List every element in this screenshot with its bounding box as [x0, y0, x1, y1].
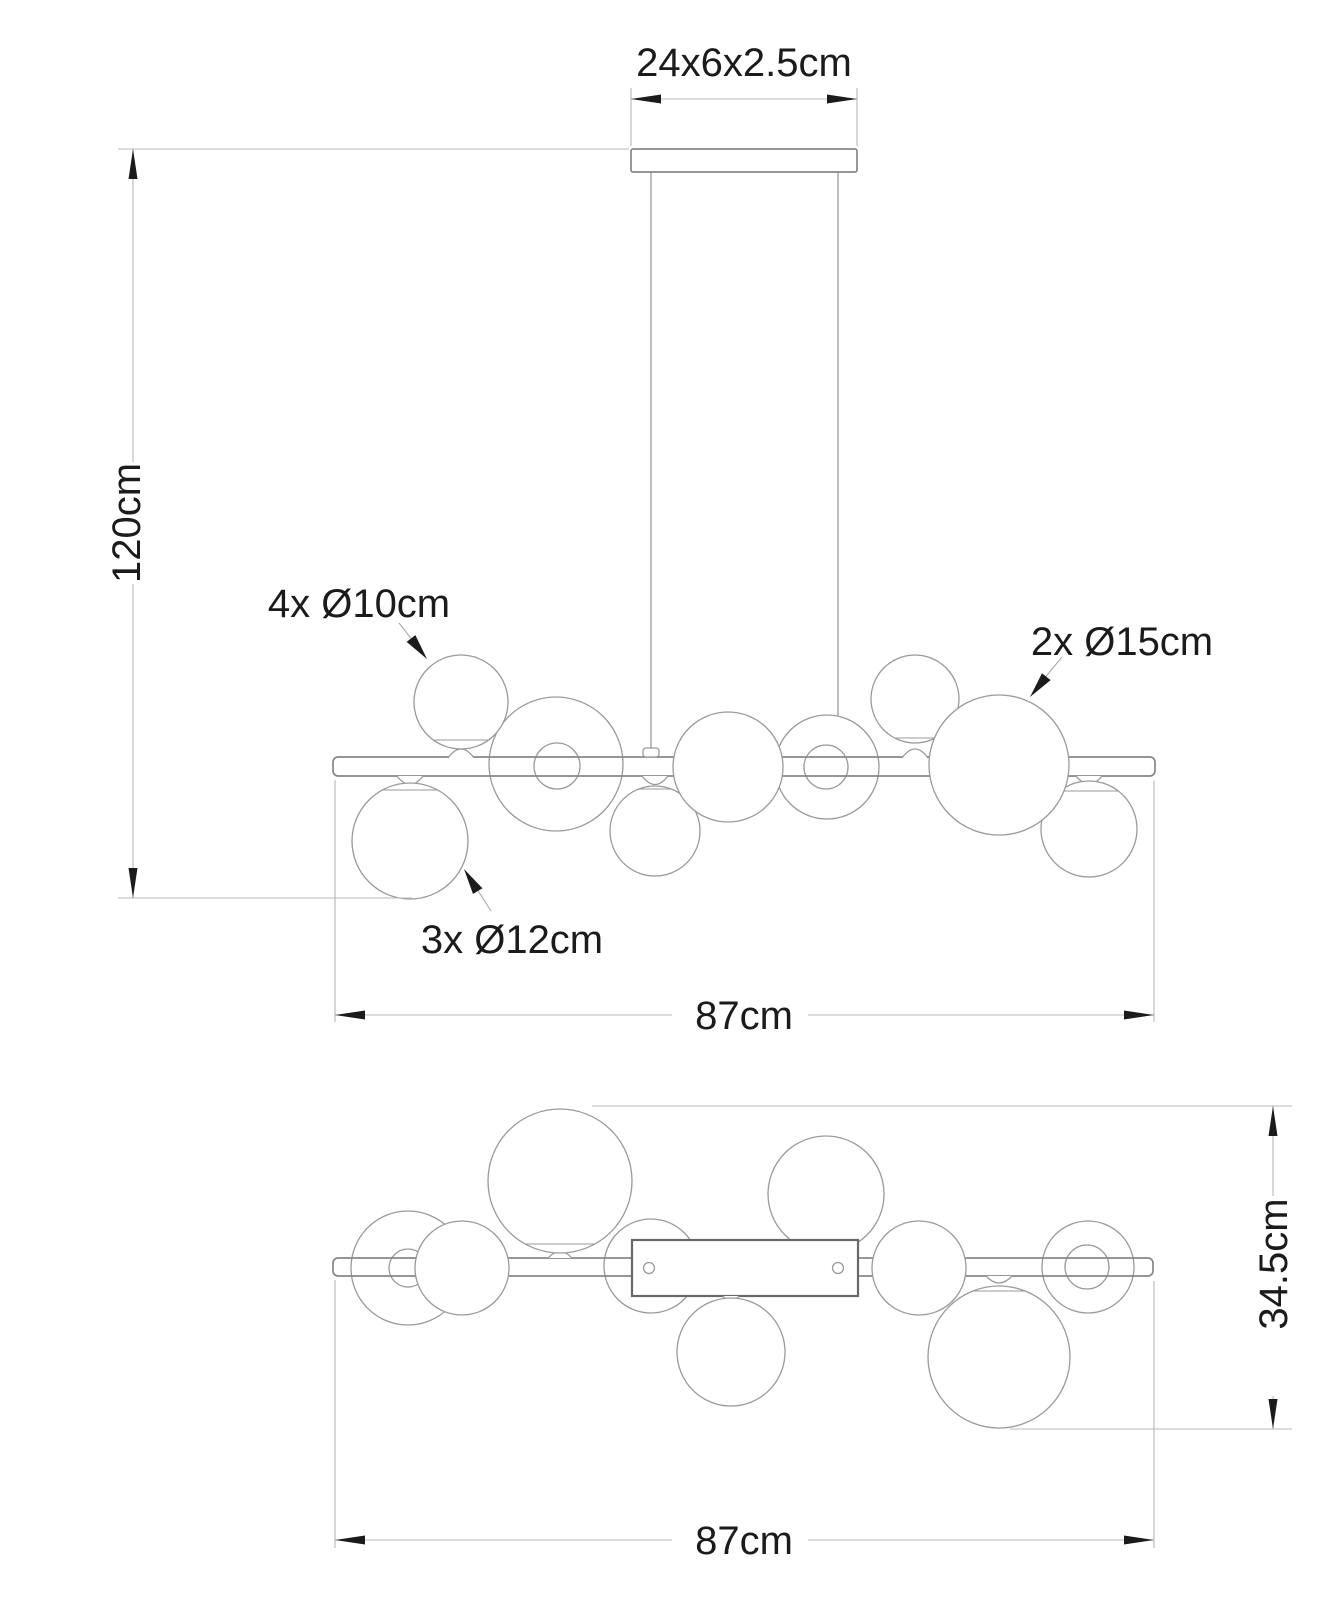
- dimension-canopy: 24x6x2.5cm: [631, 41, 857, 146]
- sphere-10cm: [415, 1221, 509, 1315]
- sphere-12cm: [352, 783, 468, 899]
- arrow-down: [129, 868, 138, 898]
- socket-down: [642, 776, 668, 785]
- arrow-up: [1269, 1106, 1278, 1136]
- sphere-10cm: [414, 655, 508, 749]
- width-top-label: 87cm: [695, 1519, 793, 1563]
- leader-arrow: [464, 869, 482, 894]
- leader-arrow: [407, 635, 427, 659]
- canopy-size-label: 24x6x2.5cm: [636, 41, 852, 85]
- sphere-10cm-ring-outline: [1042, 1221, 1134, 1313]
- width-front-label: 87cm: [695, 994, 793, 1038]
- sphere-15cm: [488, 1109, 632, 1253]
- technical-drawing-page: 24x6x2.5cm 120cm 87cm: [0, 0, 1340, 1600]
- socket-up: [448, 749, 474, 758]
- screw-hole: [644, 1263, 655, 1274]
- sphere-12cm: [768, 1136, 884, 1252]
- callout-spheres-large: 2x Ø15cm: [1030, 620, 1213, 697]
- sphere-12cm: [677, 1298, 785, 1406]
- socket-up: [902, 749, 928, 758]
- spheres-medium-label: 3x Ø12cm: [421, 918, 603, 962]
- depth-label: 34.5cm: [1252, 1198, 1296, 1329]
- spheres-small-label: 4x Ø10cm: [268, 582, 450, 626]
- sphere-15cm: [928, 1286, 1070, 1428]
- sphere-15cm-ring-outline: [489, 697, 623, 831]
- top-view: [333, 1109, 1153, 1428]
- drop-height-label: 120cm: [105, 463, 149, 583]
- arrow-right: [827, 95, 857, 104]
- leader-arrow: [1030, 673, 1051, 697]
- sphere-12cm-on-bar: [673, 712, 783, 822]
- sphere-ring-outline: [775, 715, 879, 819]
- arrow-up: [129, 149, 138, 179]
- front-view: [333, 149, 1155, 899]
- sphere-15cm: [929, 695, 1069, 835]
- arrow-left: [335, 1536, 365, 1545]
- rod-fitting: [643, 748, 659, 757]
- callout-spheres-small: 4x Ø10cm: [268, 582, 450, 659]
- sphere-ring-inner: [804, 745, 848, 789]
- socket: [986, 1276, 1012, 1283]
- arrow-left: [335, 1011, 365, 1020]
- arrow-right: [1124, 1011, 1154, 1020]
- sphere-15cm-ring-inner: [534, 743, 580, 789]
- pendant-lamp-dimension-drawing: 24x6x2.5cm 120cm 87cm: [0, 0, 1340, 1600]
- sphere-10cm-ring-inner: [1065, 1245, 1109, 1289]
- dimension-drop-height: 120cm: [105, 149, 629, 898]
- mounting-box: [632, 1240, 858, 1296]
- sphere-10cm: [872, 1221, 966, 1315]
- arrow-right: [1124, 1536, 1154, 1545]
- spheres-large-label: 2x Ø15cm: [1031, 620, 1213, 664]
- arrow-left: [631, 95, 661, 104]
- screw-hole: [833, 1263, 844, 1274]
- arrow-down: [1269, 1399, 1278, 1429]
- ceiling-canopy: [631, 149, 857, 172]
